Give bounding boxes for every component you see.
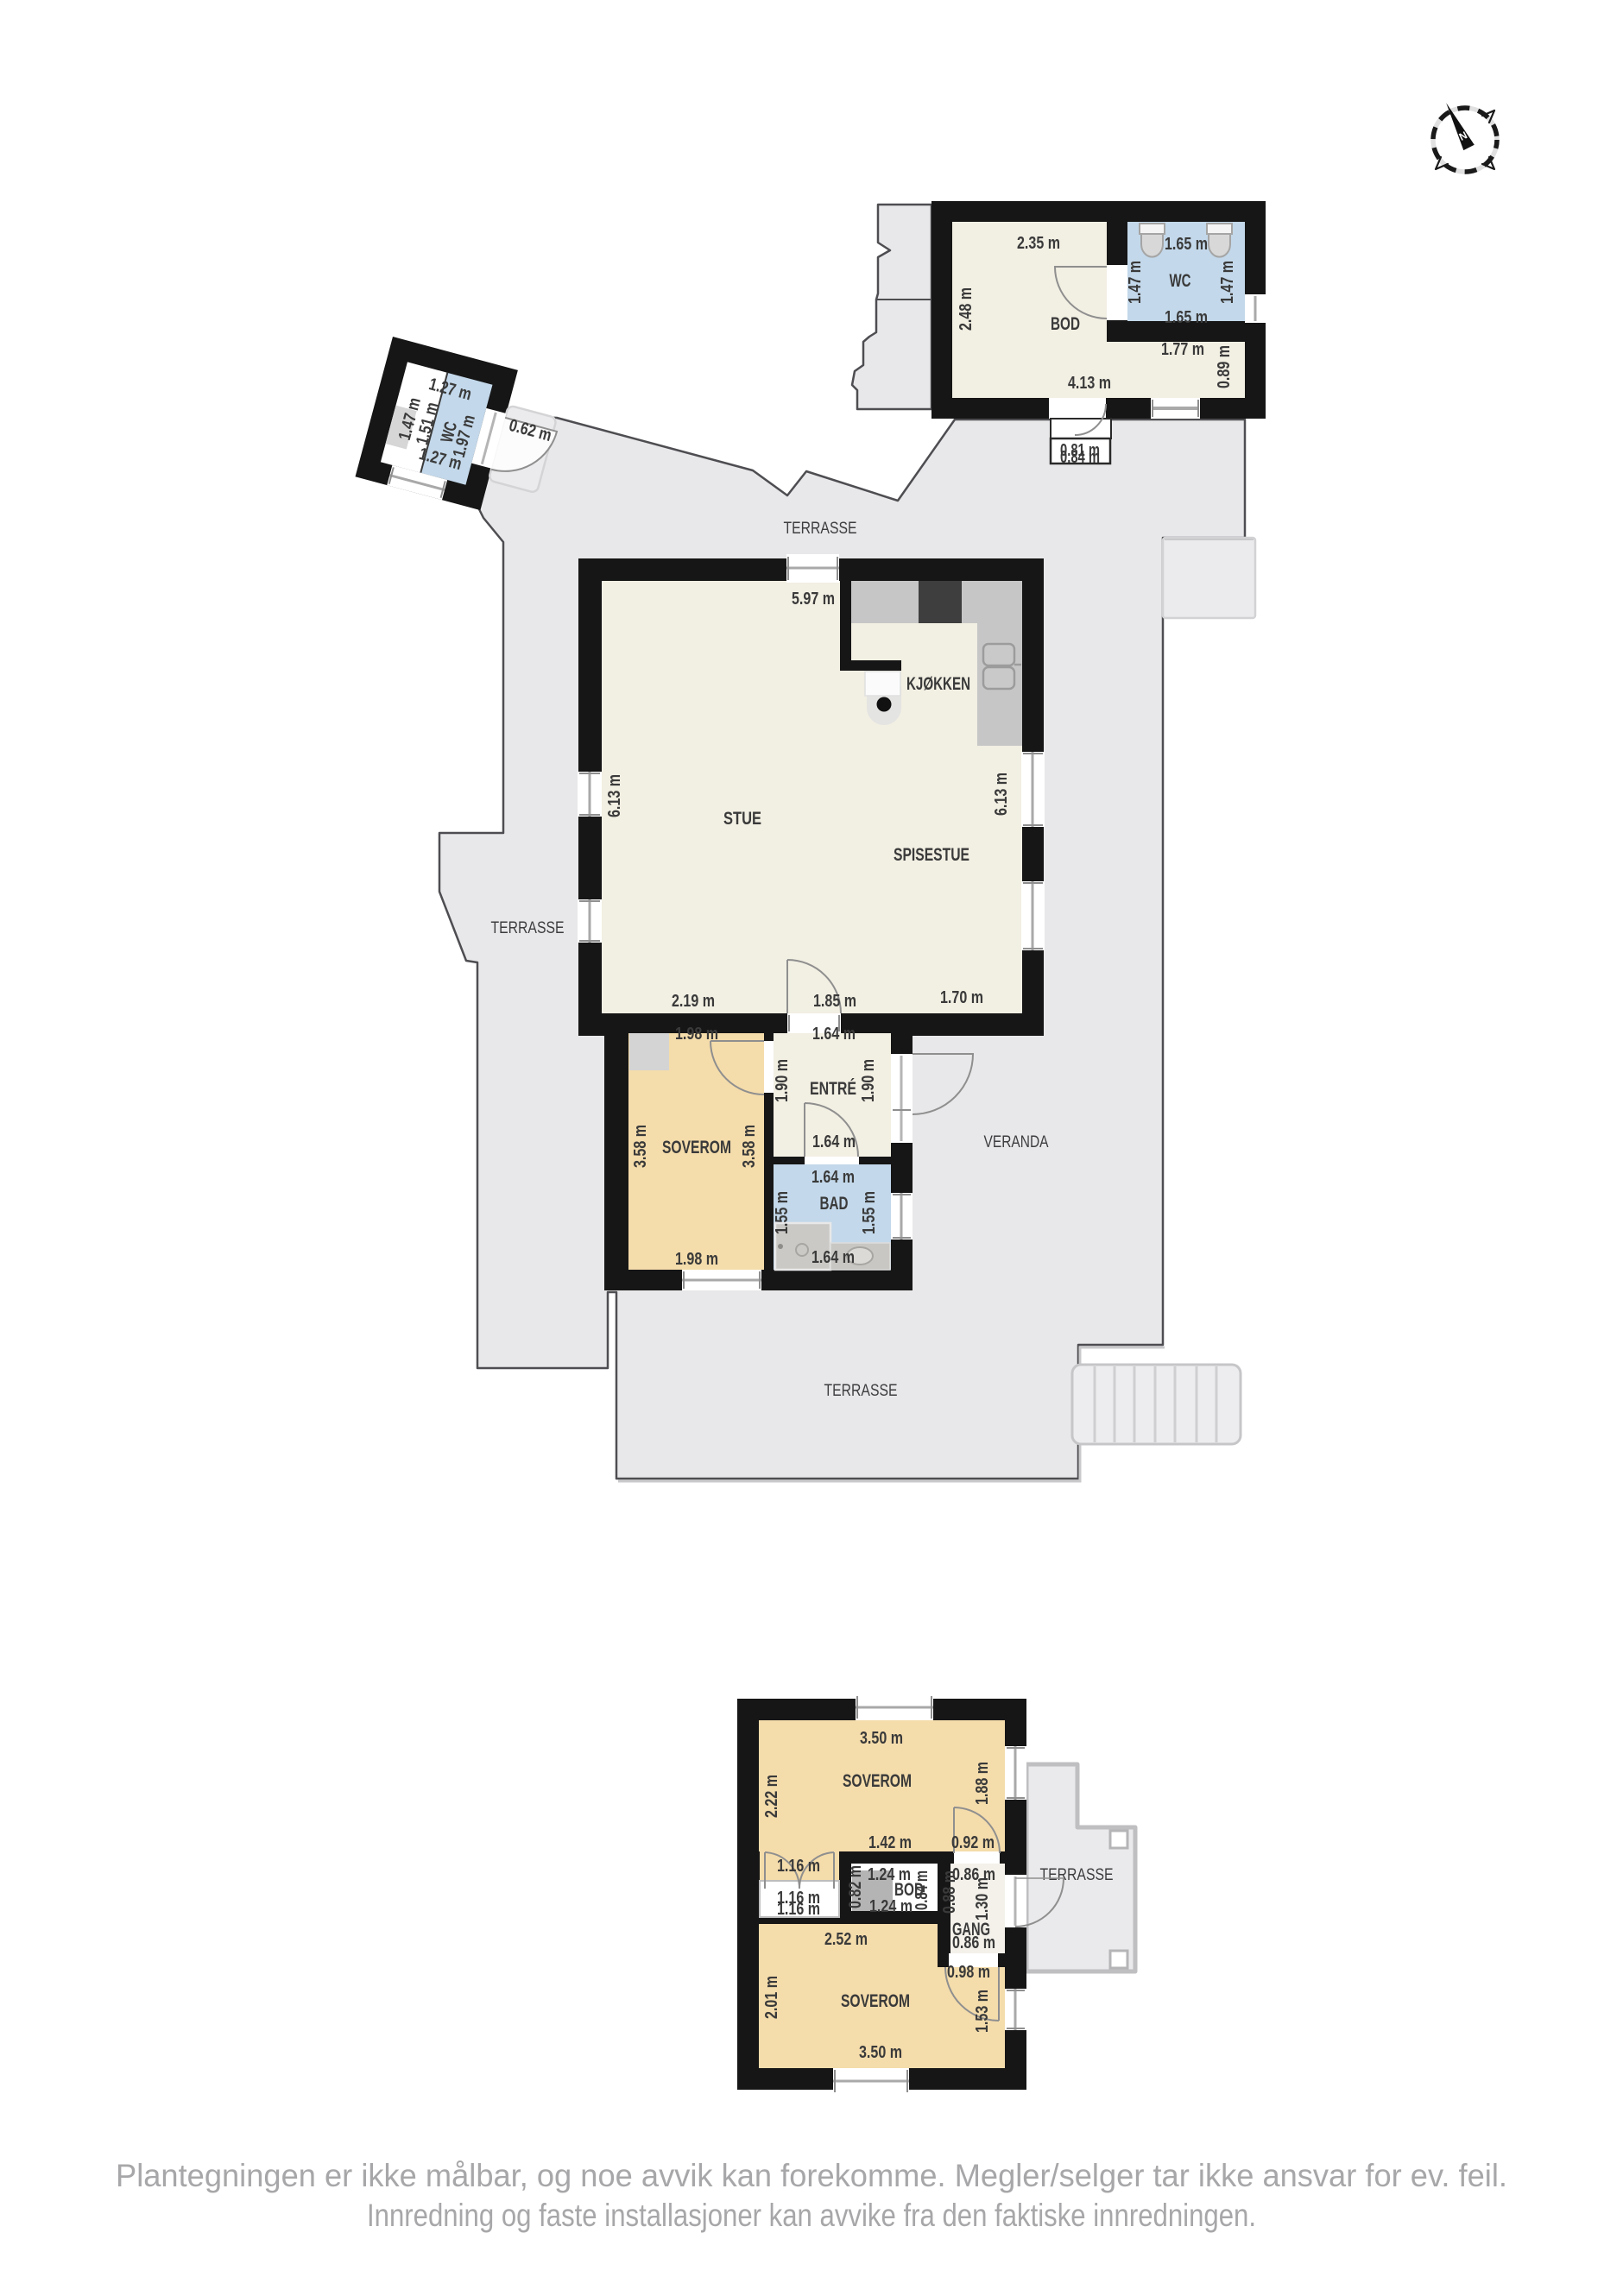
svg-text:3.58 m: 3.58 m [740, 1125, 759, 1168]
svg-text:3.58 m: 3.58 m [631, 1125, 650, 1168]
svg-text:0.89 m: 0.89 m [1215, 345, 1234, 388]
svg-text:1.47 m: 1.47 m [1126, 261, 1145, 304]
svg-text:0.84 m: 0.84 m [913, 1870, 931, 1910]
svg-text:1.64 m: 1.64 m [811, 1168, 855, 1187]
svg-text:1.90 m: 1.90 m [859, 1059, 878, 1102]
svg-text:1.64 m: 1.64 m [812, 1025, 856, 1044]
svg-text:0.86 m: 0.86 m [952, 1933, 995, 1952]
svg-text:0.88 m: 0.88 m [940, 1870, 959, 1914]
svg-text:1.88 m: 1.88 m [973, 1762, 992, 1805]
svg-text:0.82 m: 0.82 m [846, 1865, 865, 1908]
svg-text:1.64 m: 1.64 m [811, 1248, 855, 1267]
svg-text:BAD: BAD [820, 1194, 849, 1214]
svg-text:0.84 m: 0.84 m [1060, 448, 1100, 467]
svg-text:1.65 m: 1.65 m [1165, 308, 1208, 327]
svg-text:TERRASSE: TERRASSE [824, 1382, 898, 1400]
svg-text:2.19 m: 2.19 m [672, 992, 715, 1011]
svg-text:1.16 m: 1.16 m [777, 1857, 820, 1876]
svg-text:6.13 m: 6.13 m [992, 773, 1011, 816]
svg-text:VERANDA: VERANDA [984, 1133, 1049, 1151]
svg-text:WC: WC [1170, 271, 1191, 291]
svg-text:Plantegningen er ikke målbar,: Plantegningen er ikke målbar, og noe avv… [116, 2158, 1507, 2193]
svg-text:1.55 m: 1.55 m [860, 1191, 879, 1234]
svg-text:1.16 m: 1.16 m [777, 1900, 820, 1919]
svg-text:SOVEROM: SOVEROM [662, 1138, 731, 1157]
svg-text:SPISESTUE: SPISESTUE [894, 845, 969, 865]
svg-text:4.13 m: 4.13 m [1068, 374, 1111, 393]
svg-text:1.42 m: 1.42 m [868, 1833, 912, 1852]
svg-text:2.48 m: 2.48 m [957, 287, 976, 331]
svg-text:SOVEROM: SOVEROM [843, 1771, 912, 1791]
svg-text:2.52 m: 2.52 m [824, 1930, 868, 1949]
svg-text:1.90 m: 1.90 m [773, 1059, 792, 1102]
svg-text:1.65 m: 1.65 m [1165, 235, 1208, 254]
svg-text:1.24 m: 1.24 m [869, 1897, 913, 1916]
svg-text:1.30 m: 1.30 m [973, 1877, 992, 1921]
svg-text:2.22 m: 2.22 m [762, 1775, 781, 1818]
svg-text:1.85 m: 1.85 m [813, 992, 856, 1011]
svg-text:TERRASSE: TERRASSE [784, 520, 857, 538]
svg-text:SOVEROM: SOVEROM [841, 1991, 910, 2011]
svg-text:1.55 m: 1.55 m [773, 1191, 792, 1234]
svg-text:1.47 m: 1.47 m [1218, 261, 1237, 304]
svg-text:6.13 m: 6.13 m [605, 774, 624, 817]
svg-text:1.64 m: 1.64 m [812, 1132, 856, 1151]
svg-text:3.50 m: 3.50 m [860, 1729, 903, 1748]
svg-text:STUE: STUE [723, 809, 761, 829]
svg-text:BOD: BOD [1051, 314, 1080, 334]
svg-text:2.35 m: 2.35 m [1017, 234, 1060, 253]
svg-text:Innredning og faste installasj: Innredning og faste installasjoner kan a… [367, 2198, 1256, 2233]
svg-text:0.92 m: 0.92 m [951, 1833, 995, 1852]
svg-text:0.98 m: 0.98 m [947, 1963, 990, 1982]
svg-text:TERRASSE: TERRASSE [1040, 1866, 1114, 1884]
svg-text:1.53 m: 1.53 m [973, 1990, 992, 2033]
svg-text:2.01 m: 2.01 m [762, 1976, 781, 2019]
svg-text:3.50 m: 3.50 m [859, 2043, 902, 2062]
svg-text:1.70 m: 1.70 m [940, 988, 983, 1007]
svg-text:5.97 m: 5.97 m [792, 590, 835, 609]
svg-text:KJØKKEN: KJØKKEN [906, 674, 970, 694]
svg-text:ENTRÉ: ENTRÉ [810, 1079, 856, 1099]
svg-text:1.77 m: 1.77 m [1161, 340, 1204, 359]
svg-text:1.98 m: 1.98 m [675, 1025, 718, 1044]
svg-text:TERRASSE: TERRASSE [491, 919, 565, 937]
svg-text:1.98 m: 1.98 m [675, 1250, 718, 1269]
